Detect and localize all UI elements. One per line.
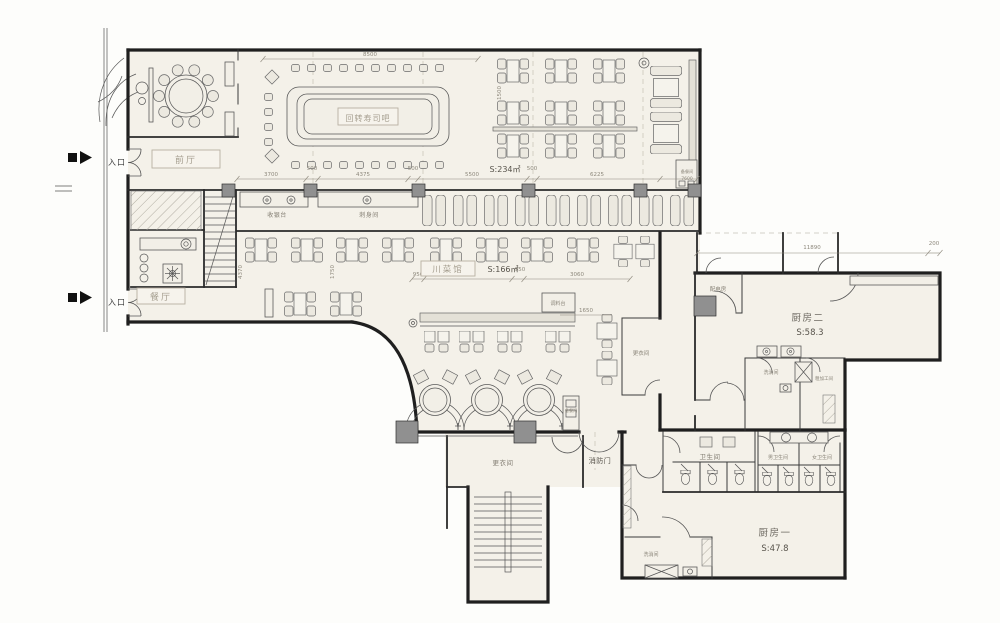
bar-counter <box>140 238 196 250</box>
sichuan-hall-label: 川菜馆 <box>432 264 464 275</box>
booth-tables <box>420 385 555 416</box>
bench-divider <box>493 127 637 131</box>
kitchen-two-label: 厨房二 <box>791 312 824 324</box>
property-line <box>55 28 107 332</box>
sichuan-area-label: S:166㎡ <box>487 265 518 274</box>
rough-prep-label: 粗加工间 <box>815 375 833 382</box>
wall-bench <box>689 60 696 162</box>
dim-11890: 11890 <box>803 245 821 251</box>
pantry-label-b: 备餐间 <box>681 168 694 175</box>
dim-6225: 6225 <box>590 172 604 178</box>
condiment-label: 调料台 <box>550 300 565 307</box>
kitchen-counter <box>850 276 938 285</box>
dim-1650: 1650 <box>579 308 593 314</box>
shaft-column <box>694 296 716 316</box>
entrance-arrow-icon <box>80 151 92 164</box>
dim-5500: 5500 <box>465 172 479 178</box>
toilet-label: 卫生间 <box>700 452 721 461</box>
front-hall-label: 前厅 <box>175 154 197 166</box>
booth-table <box>650 66 682 108</box>
service-stand <box>265 289 273 317</box>
urinal <box>723 437 735 447</box>
sink-counter <box>770 432 828 443</box>
dim-1750: 1750 <box>330 265 336 279</box>
dim-1500: 1500 <box>497 86 503 100</box>
cashier-label: 收银台 <box>267 211 287 219</box>
dim-4370: 4370 <box>238 265 244 279</box>
flower-icon <box>165 266 180 281</box>
locker-room-a-label: 更衣间 <box>493 458 514 467</box>
dim-8500: 8500 <box>363 52 377 58</box>
kitchen-two-area-label: S:58.3 <box>796 328 823 338</box>
entrance-arrow-icon <box>80 291 92 304</box>
wash-room-a-label: 洗消间 <box>763 369 778 376</box>
wash-room-b-label: 洗消间 <box>643 551 658 558</box>
dining-hall-label: 餐厅 <box>150 291 172 303</box>
dim-7600: 7600 <box>681 176 693 182</box>
pantry-station <box>563 396 579 430</box>
cashier-counter <box>240 192 308 207</box>
sushi-bar-label: 回转寿司吧 <box>346 113 391 123</box>
entrance-label-1: 入口 <box>108 158 126 167</box>
sideboard <box>225 62 234 86</box>
fire-door-label: 消防门 <box>589 456 612 465</box>
sashimi-room-label: 刺身间 <box>359 211 379 219</box>
power-room-label: 配电房 <box>710 285 727 293</box>
urinal <box>700 437 712 447</box>
locker-room-b-label: 更衣间 <box>633 349 650 357</box>
dim-3060: 3060 <box>570 272 584 278</box>
dim-500c: 500 <box>527 166 538 172</box>
stairs-lower <box>474 492 542 572</box>
pantry-label-a: 备餐间 <box>565 407 578 414</box>
dim-3700: 3700 <box>264 172 278 178</box>
sushi-area-label: S:234㎡ <box>489 165 520 174</box>
entrance-label-2: 入口 <box>108 298 126 307</box>
booth-table <box>650 112 682 154</box>
floor-plan-canvas: 8500 3700 500 4375 500 5500 500 6225 760… <box>0 0 1000 623</box>
dim-4375: 4375 <box>356 172 370 178</box>
dim-500a: 500 <box>307 166 318 172</box>
kitchen-one-label: 厨房一 <box>758 527 791 539</box>
floor-plan: 8500 3700 500 4375 500 5500 500 6225 760… <box>0 0 1000 623</box>
dim-200: 200 <box>929 241 940 247</box>
console-table <box>149 68 153 122</box>
mens-toilet-label: 男卫生间 <box>768 454 788 461</box>
dim-500b: 500 <box>408 166 419 172</box>
entrance-markers <box>68 151 92 304</box>
womens-toilet-label: 女卫生间 <box>812 454 832 461</box>
banquette-bench <box>420 313 575 322</box>
sideboard <box>225 112 234 136</box>
kitchen-one-area-label: S:47.8 <box>761 544 788 554</box>
